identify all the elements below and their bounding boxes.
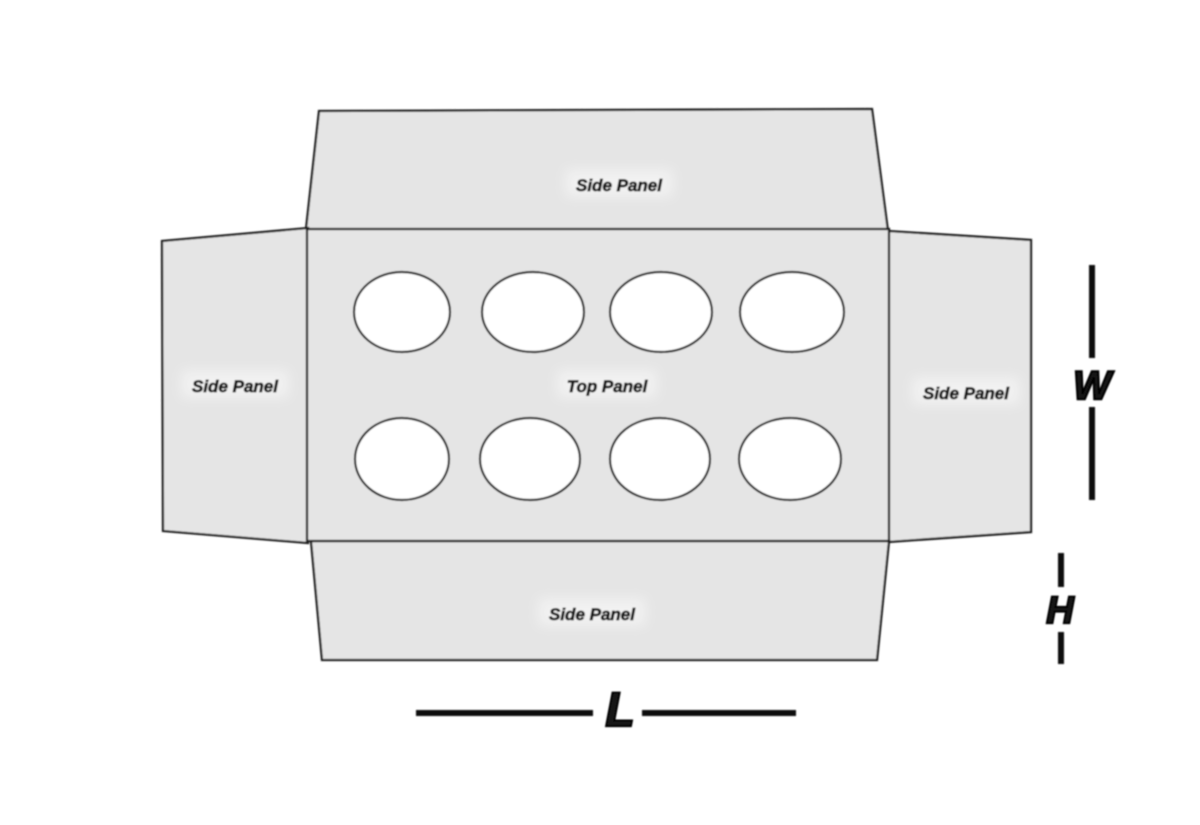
svg-text:L: L (605, 684, 634, 737)
svg-text:Side Panel: Side Panel (923, 384, 1010, 403)
svg-text:Side Panel: Side Panel (576, 176, 663, 195)
svg-text:Side Panel: Side Panel (192, 377, 279, 396)
svg-text:Side Panel: Side Panel (549, 605, 636, 624)
svg-text:Top Panel: Top Panel (567, 377, 649, 396)
svg-text:H: H (1046, 590, 1075, 632)
svg-text:W: W (1073, 364, 1114, 408)
